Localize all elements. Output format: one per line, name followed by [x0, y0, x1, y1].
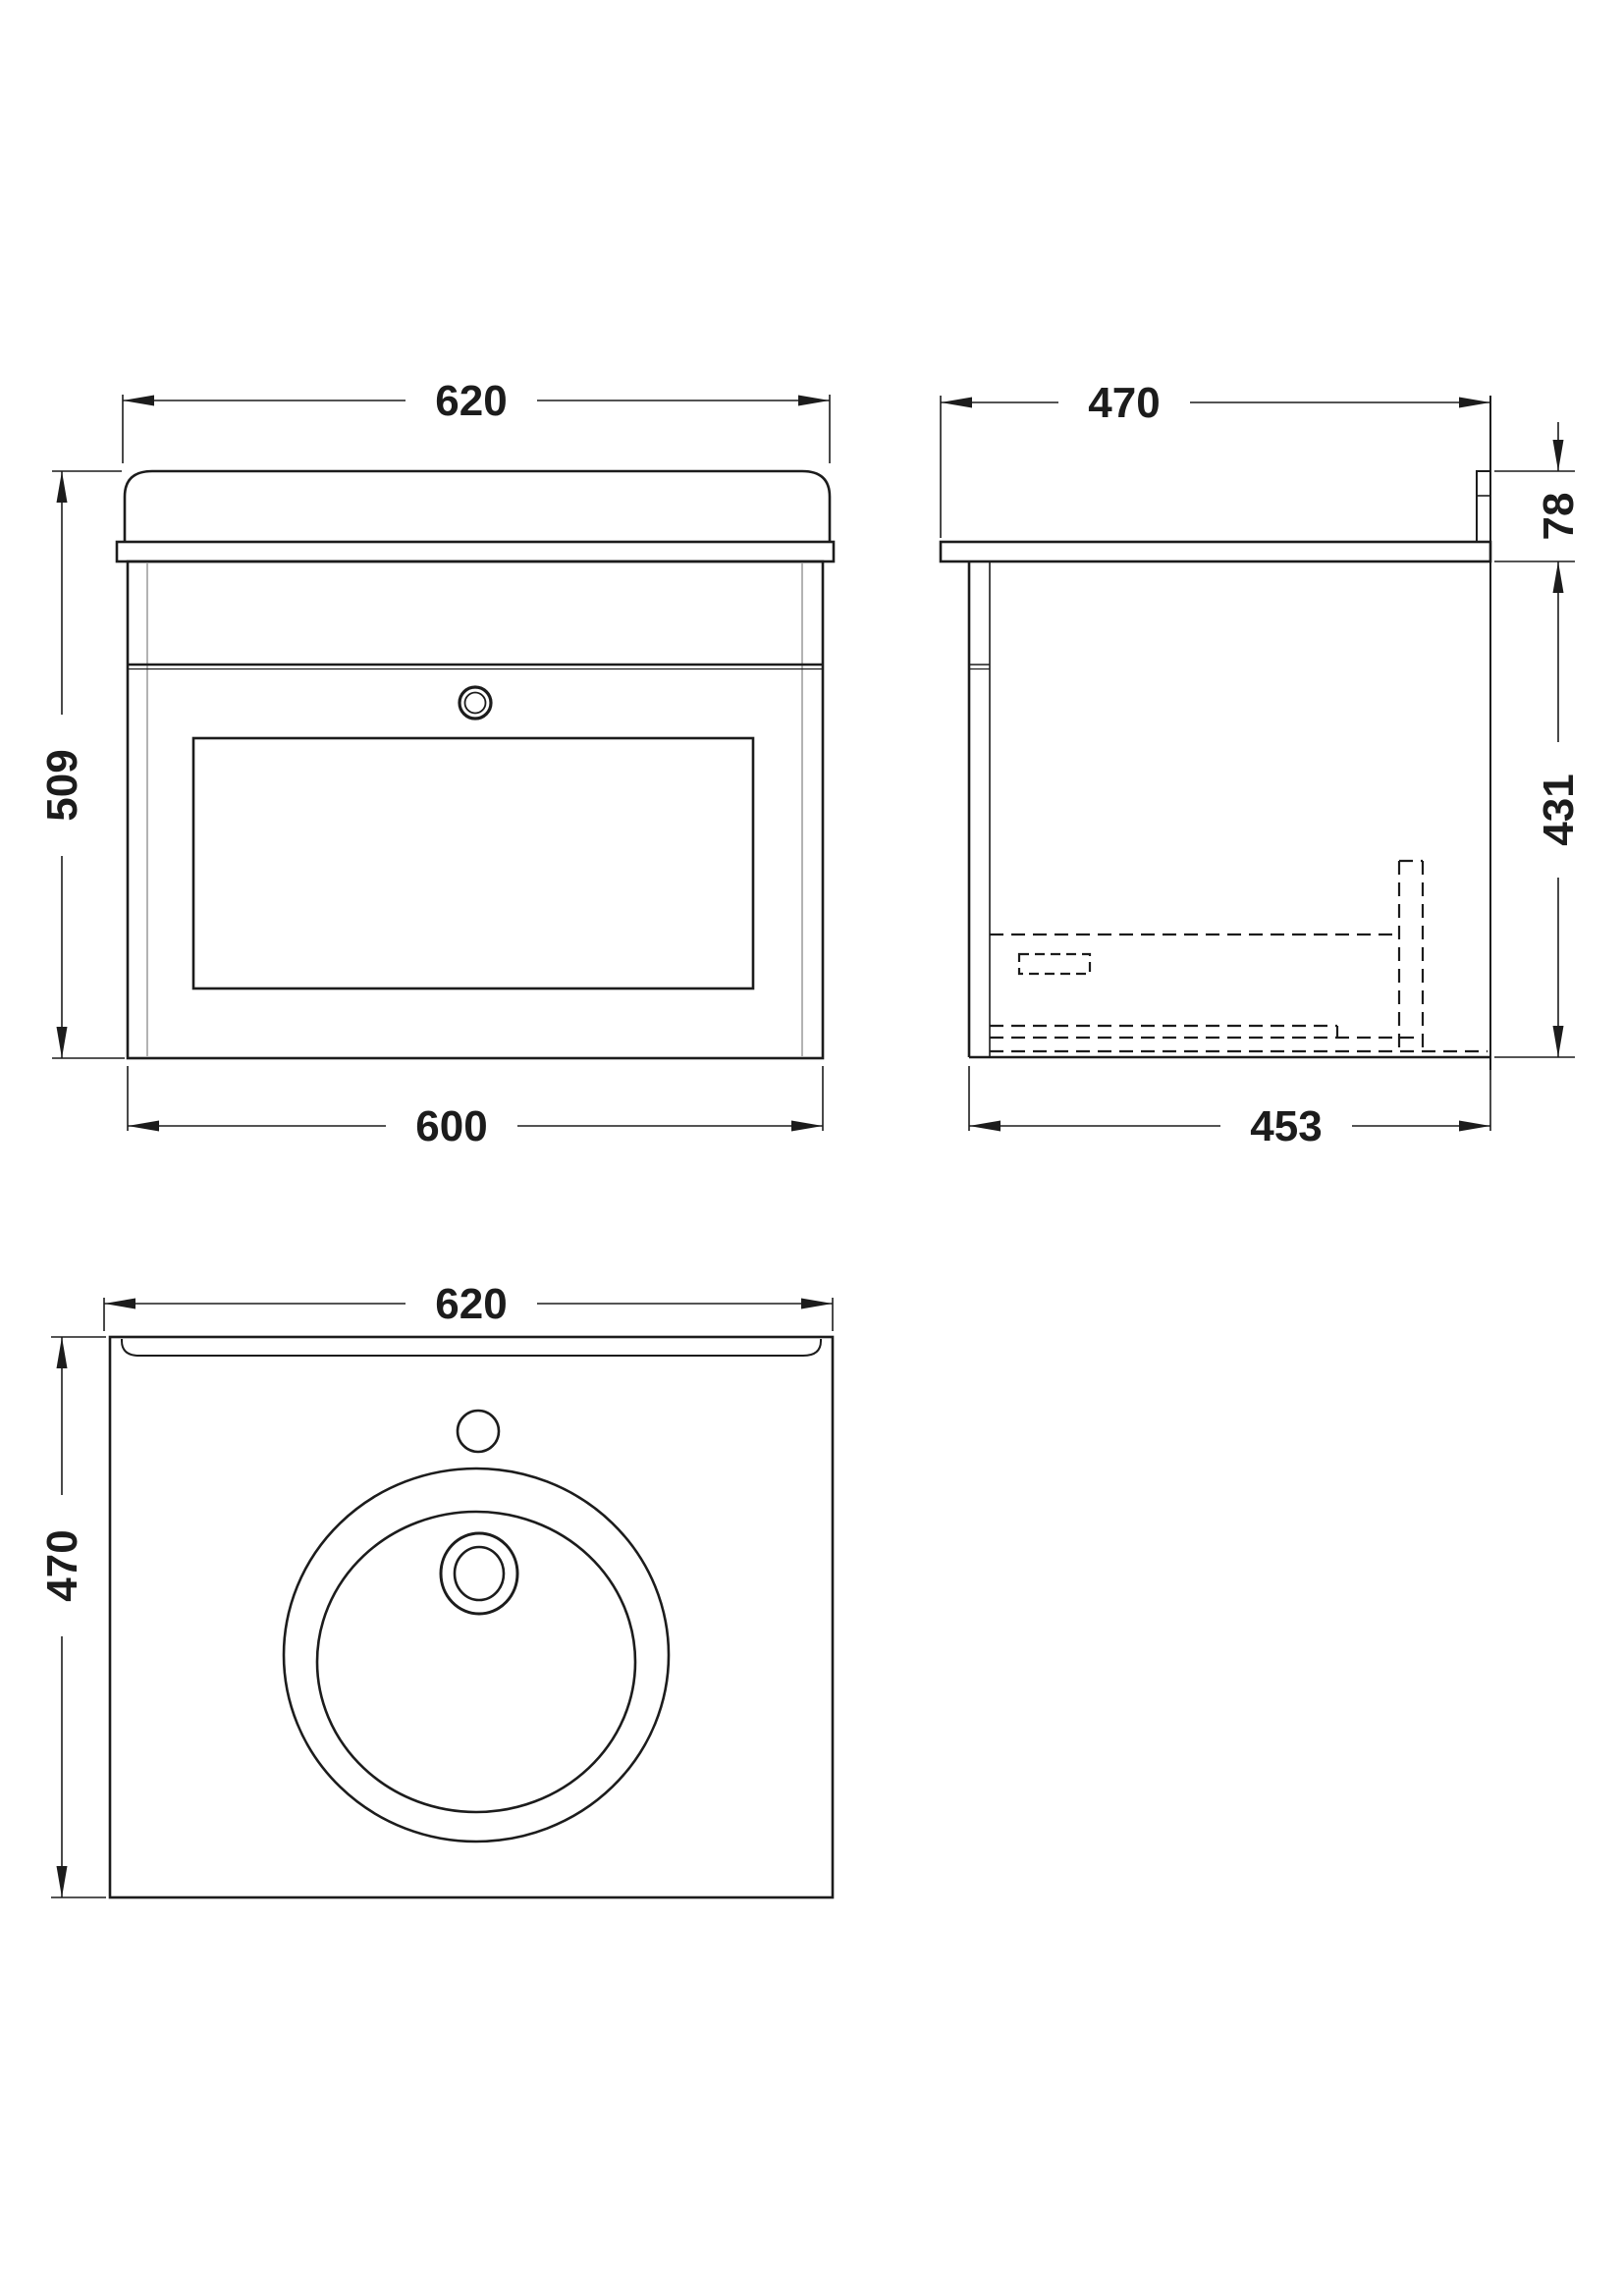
arrowhead	[798, 396, 830, 406]
arrowhead	[1459, 1121, 1490, 1132]
dimension-label: 470	[38, 1529, 86, 1601]
dimension-label: 453	[1250, 1102, 1322, 1150]
drawer-panel	[193, 738, 753, 988]
plan-depth-dimension: 470	[38, 1337, 106, 1897]
arrowhead	[969, 1121, 1001, 1132]
dimension-label: 600	[415, 1102, 487, 1150]
front-view: 620 509	[38, 377, 834, 1150]
arrowhead	[104, 1299, 135, 1309]
dimension-label: 431	[1535, 774, 1583, 845]
side-depth-top-dimension: 470	[941, 379, 1490, 538]
plan-view: 620 470	[38, 1280, 833, 1897]
basin-bowl	[284, 1468, 669, 1842]
hidden-drawer-structure	[990, 861, 1488, 1051]
knob-inner-ring	[465, 693, 486, 714]
arrowhead	[123, 396, 154, 406]
dimension-label: 620	[435, 1280, 507, 1328]
arrowhead	[1553, 1026, 1564, 1057]
arrowhead	[791, 1121, 823, 1132]
side-upstand-height-dimension: 78	[1494, 422, 1583, 561]
arrowhead	[57, 471, 68, 503]
arrowhead	[57, 1866, 68, 1897]
arrowhead	[57, 1337, 68, 1368]
dimension-label: 470	[1088, 379, 1160, 427]
arrowhead	[57, 1027, 68, 1058]
upstand	[1477, 471, 1490, 542]
tap-hole	[458, 1411, 499, 1452]
handle-fixing-hidden-detail	[1019, 954, 1090, 974]
waste-outlet	[441, 1533, 517, 1614]
waste-inner-ring	[455, 1547, 504, 1600]
side-cabinet-height-dimension: 431	[1494, 561, 1583, 1057]
arrowhead	[1459, 398, 1490, 408]
front-width-bottom-dimension: 600	[128, 1066, 823, 1150]
arrowhead	[1553, 440, 1564, 471]
dimension-label: 509	[38, 749, 86, 821]
basin-rim-inner	[317, 1512, 635, 1812]
countertop-plan-outline	[110, 1337, 833, 1897]
arrowhead	[801, 1299, 833, 1309]
basin-front-outline	[125, 471, 830, 542]
side-depth-bottom-dimension: 453	[969, 1066, 1490, 1150]
dimension-label: 620	[435, 377, 507, 425]
back-ledge-line	[122, 1339, 821, 1356]
arrowhead	[128, 1121, 159, 1132]
plan-width-dimension: 620	[104, 1280, 833, 1331]
drawer-knob	[460, 687, 491, 719]
front-width-top-dimension: 620	[123, 377, 830, 463]
waste-outer-ring	[441, 1533, 517, 1614]
upstand-outline	[1477, 471, 1490, 542]
countertop-side-profile	[941, 542, 1490, 561]
front-height-dimension: 509	[38, 471, 125, 1058]
side-view: 470	[941, 379, 1583, 1150]
basin-rim-outer	[284, 1468, 669, 1842]
countertop-edge	[117, 542, 834, 561]
arrowhead	[1553, 561, 1564, 593]
technical-drawing-canvas: 620 509	[0, 0, 1623, 2296]
arrowhead	[941, 398, 972, 408]
cabinet-outline	[128, 561, 823, 1058]
drawing-sheet: 620 509	[0, 0, 1623, 2296]
dimension-label: 78	[1535, 493, 1583, 541]
